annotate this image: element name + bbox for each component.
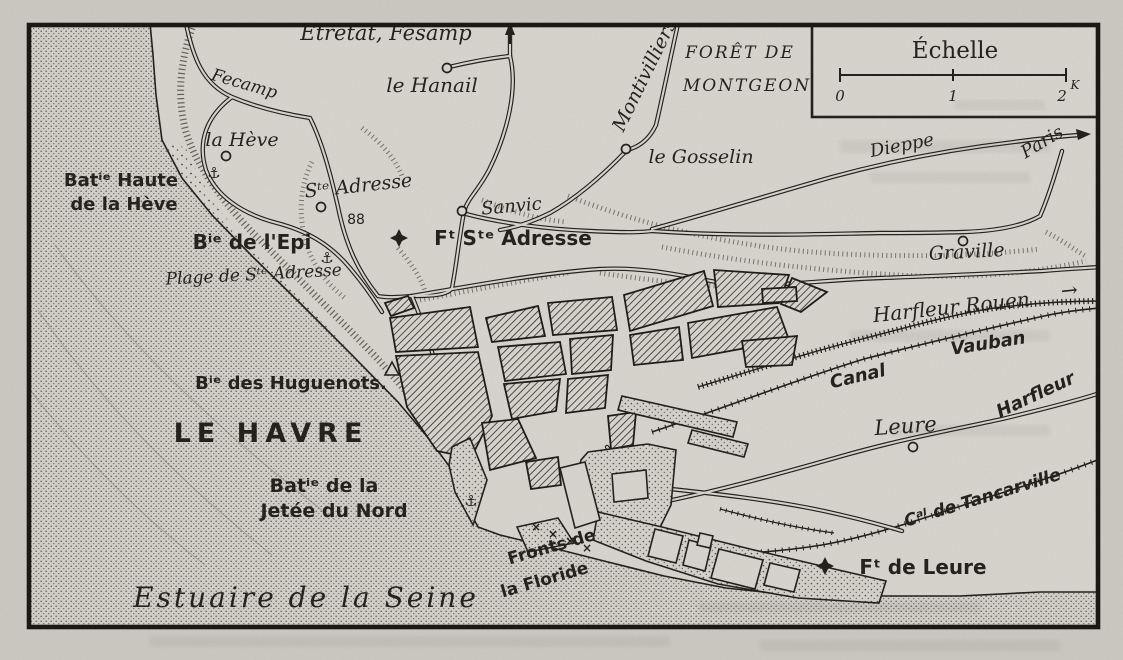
- map-canvas: ⚓ ⚓ ⚓ × × × × Etretat, Fésamp Fecamp le …: [0, 0, 1123, 660]
- paper-grain: [0, 0, 1123, 660]
- scanned-map-page: ⚓ ⚓ ⚓ × × × × Etretat, Fésamp Fecamp le …: [0, 0, 1123, 660]
